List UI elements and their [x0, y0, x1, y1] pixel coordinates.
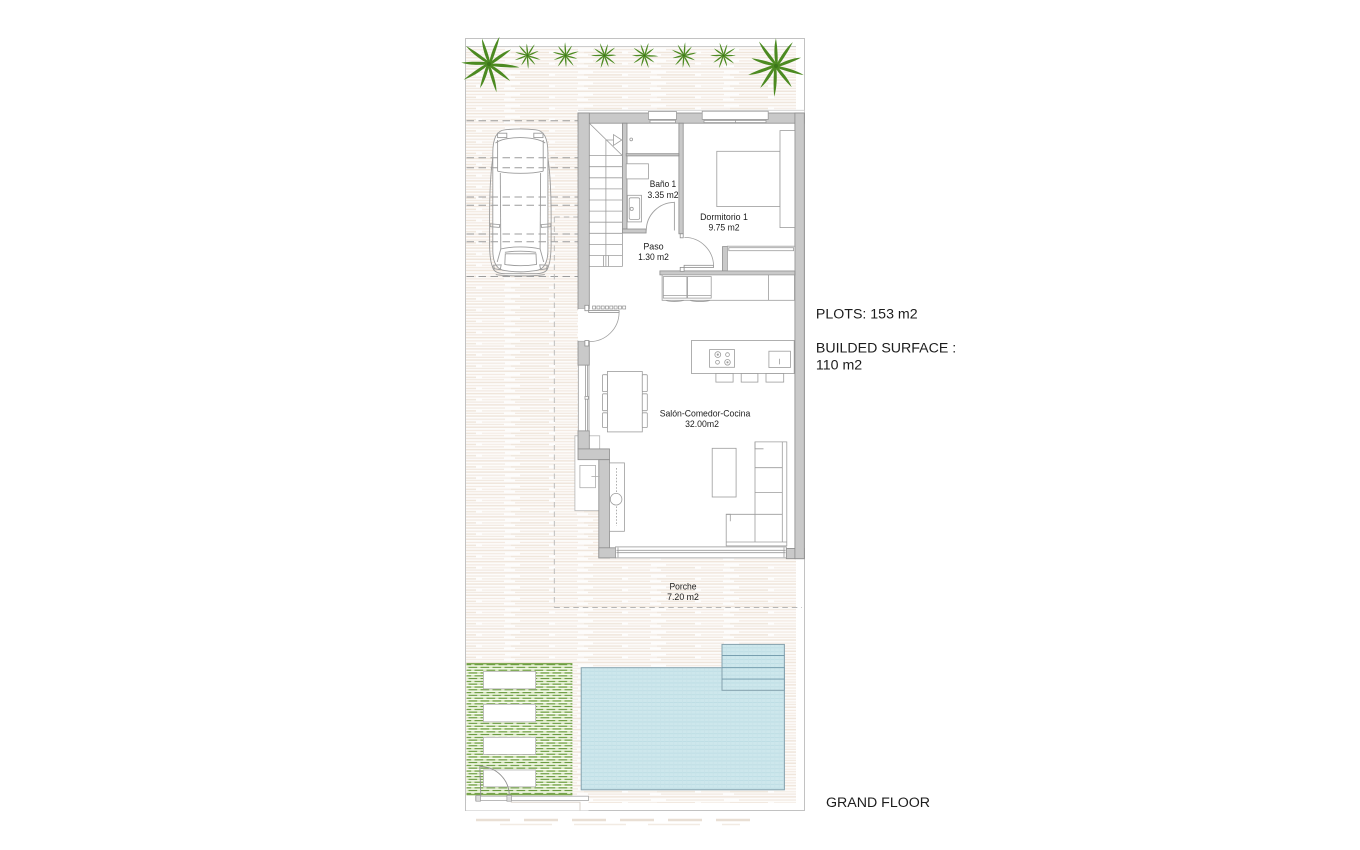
- svg-text:Dormitorio 1: Dormitorio 1: [700, 211, 748, 222]
- svg-text:110 m2: 110 m2: [816, 357, 862, 373]
- svg-text:7.20 m2: 7.20 m2: [667, 591, 699, 602]
- svg-text:Salón-Comedor-Cocina: Salón-Comedor-Cocina: [660, 408, 751, 419]
- svg-text:9.75 m2: 9.75 m2: [709, 222, 740, 233]
- svg-text:Baño 1: Baño 1: [650, 178, 676, 189]
- svg-text:GRAND FLOOR: GRAND FLOOR: [826, 795, 930, 811]
- svg-text:32.00m2: 32.00m2: [685, 418, 719, 429]
- svg-text:PLOTS: 153 m2: PLOTS: 153 m2: [816, 306, 918, 322]
- svg-text:1.30 m2: 1.30 m2: [638, 251, 669, 262]
- svg-text:BUILDED SURFACE :: BUILDED SURFACE :: [816, 340, 956, 356]
- svg-text:3.35 m2: 3.35 m2: [648, 189, 679, 200]
- svg-text:Paso: Paso: [643, 241, 663, 252]
